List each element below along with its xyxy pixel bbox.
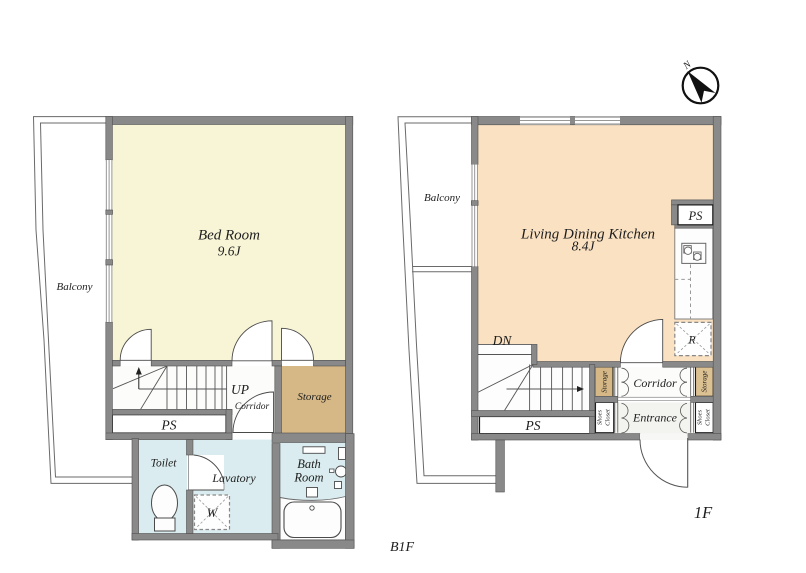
- svg-text:Storage: Storage: [297, 391, 331, 403]
- svg-text:9.6J: 9.6J: [218, 244, 242, 259]
- svg-text:DN: DN: [492, 333, 513, 348]
- svg-text:8.4J: 8.4J: [572, 239, 596, 254]
- svg-text:PS: PS: [687, 209, 703, 223]
- svg-text:Corridor: Corridor: [633, 376, 677, 390]
- svg-text:B1F: B1F: [390, 540, 415, 555]
- svg-text:Bath: Bath: [297, 457, 321, 471]
- svg-text:PS: PS: [525, 418, 541, 433]
- svg-text:Entrance: Entrance: [632, 411, 678, 425]
- svg-text:Balcony: Balcony: [56, 281, 92, 293]
- svg-text:W: W: [207, 506, 219, 520]
- svg-text:Lavatory: Lavatory: [211, 471, 256, 485]
- svg-text:Toilet: Toilet: [151, 458, 178, 470]
- svg-text:Room: Room: [293, 471, 323, 485]
- svg-text:Corridor: Corridor: [235, 402, 270, 412]
- svg-text:Storage: Storage: [701, 371, 709, 393]
- svg-text:Balcony: Balcony: [424, 192, 460, 204]
- svg-text:Closet: Closet: [605, 409, 612, 426]
- svg-text:Bed Room: Bed Room: [198, 228, 260, 244]
- svg-text:Shoes: Shoes: [697, 409, 704, 425]
- svg-text:UP: UP: [231, 382, 249, 397]
- svg-text:Storage: Storage: [601, 371, 609, 393]
- svg-text:R: R: [687, 335, 695, 347]
- svg-text:Shoes: Shoes: [597, 409, 604, 425]
- svg-text:1F: 1F: [694, 503, 713, 522]
- svg-text:Closet: Closet: [705, 409, 712, 426]
- svg-text:PS: PS: [161, 418, 177, 433]
